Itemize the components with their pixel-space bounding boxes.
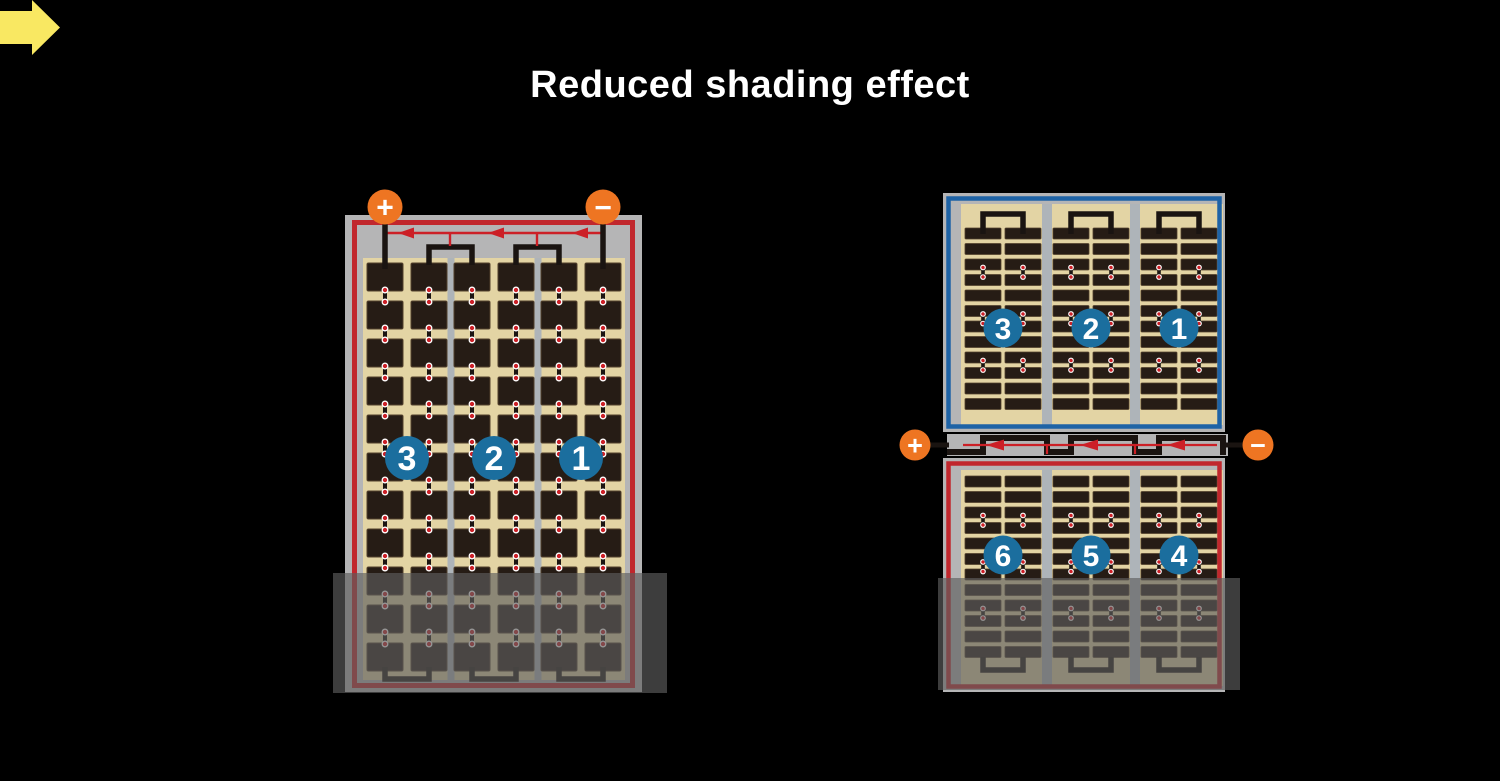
page: Reduced shading effect: [0, 0, 1500, 781]
bottom-half-module: 6 5 4: [938, 458, 1240, 692]
string-number-badges: 3 2 1: [385, 436, 603, 480]
string-number-badge: 4: [1171, 540, 1188, 573]
shading-overlay: [333, 573, 667, 693]
left-module: + − 3 2 1: [330, 185, 680, 715]
string-number-badge: 3: [995, 313, 1012, 346]
junction-diode-strip: [928, 434, 1245, 456]
top-half-module: 3 2 1: [943, 193, 1225, 432]
terminal-negative: −: [1243, 430, 1274, 461]
string-number-badge: 2: [485, 440, 504, 478]
right-module: 3 2 1: [895, 188, 1285, 710]
terminal-negative: −: [586, 190, 621, 225]
string-number-badges-top: 3 2 1: [984, 309, 1199, 348]
shading-overlay: [938, 578, 1240, 690]
string-number-badge: 2: [1083, 313, 1100, 346]
minus-icon: −: [1250, 431, 1266, 461]
string-number-badge: 6: [995, 540, 1012, 573]
string-number-badges-bottom: 6 5 4: [984, 536, 1199, 575]
plus-icon: +: [376, 192, 394, 225]
terminal-positive: +: [900, 430, 931, 461]
minus-icon: −: [594, 192, 612, 225]
string-number-badge: 3: [398, 440, 417, 478]
string-divider: [1042, 204, 1052, 425]
terminal-positive: +: [368, 190, 403, 225]
transform-arrow-icon: [0, 0, 60, 55]
string-number-badge: 1: [572, 440, 591, 478]
plus-icon: +: [907, 431, 923, 461]
string-divider: [1130, 204, 1140, 425]
page-title: Reduced shading effect: [0, 64, 1500, 107]
string-number-badge: 5: [1083, 540, 1100, 573]
string-number-badge: 1: [1171, 313, 1188, 346]
